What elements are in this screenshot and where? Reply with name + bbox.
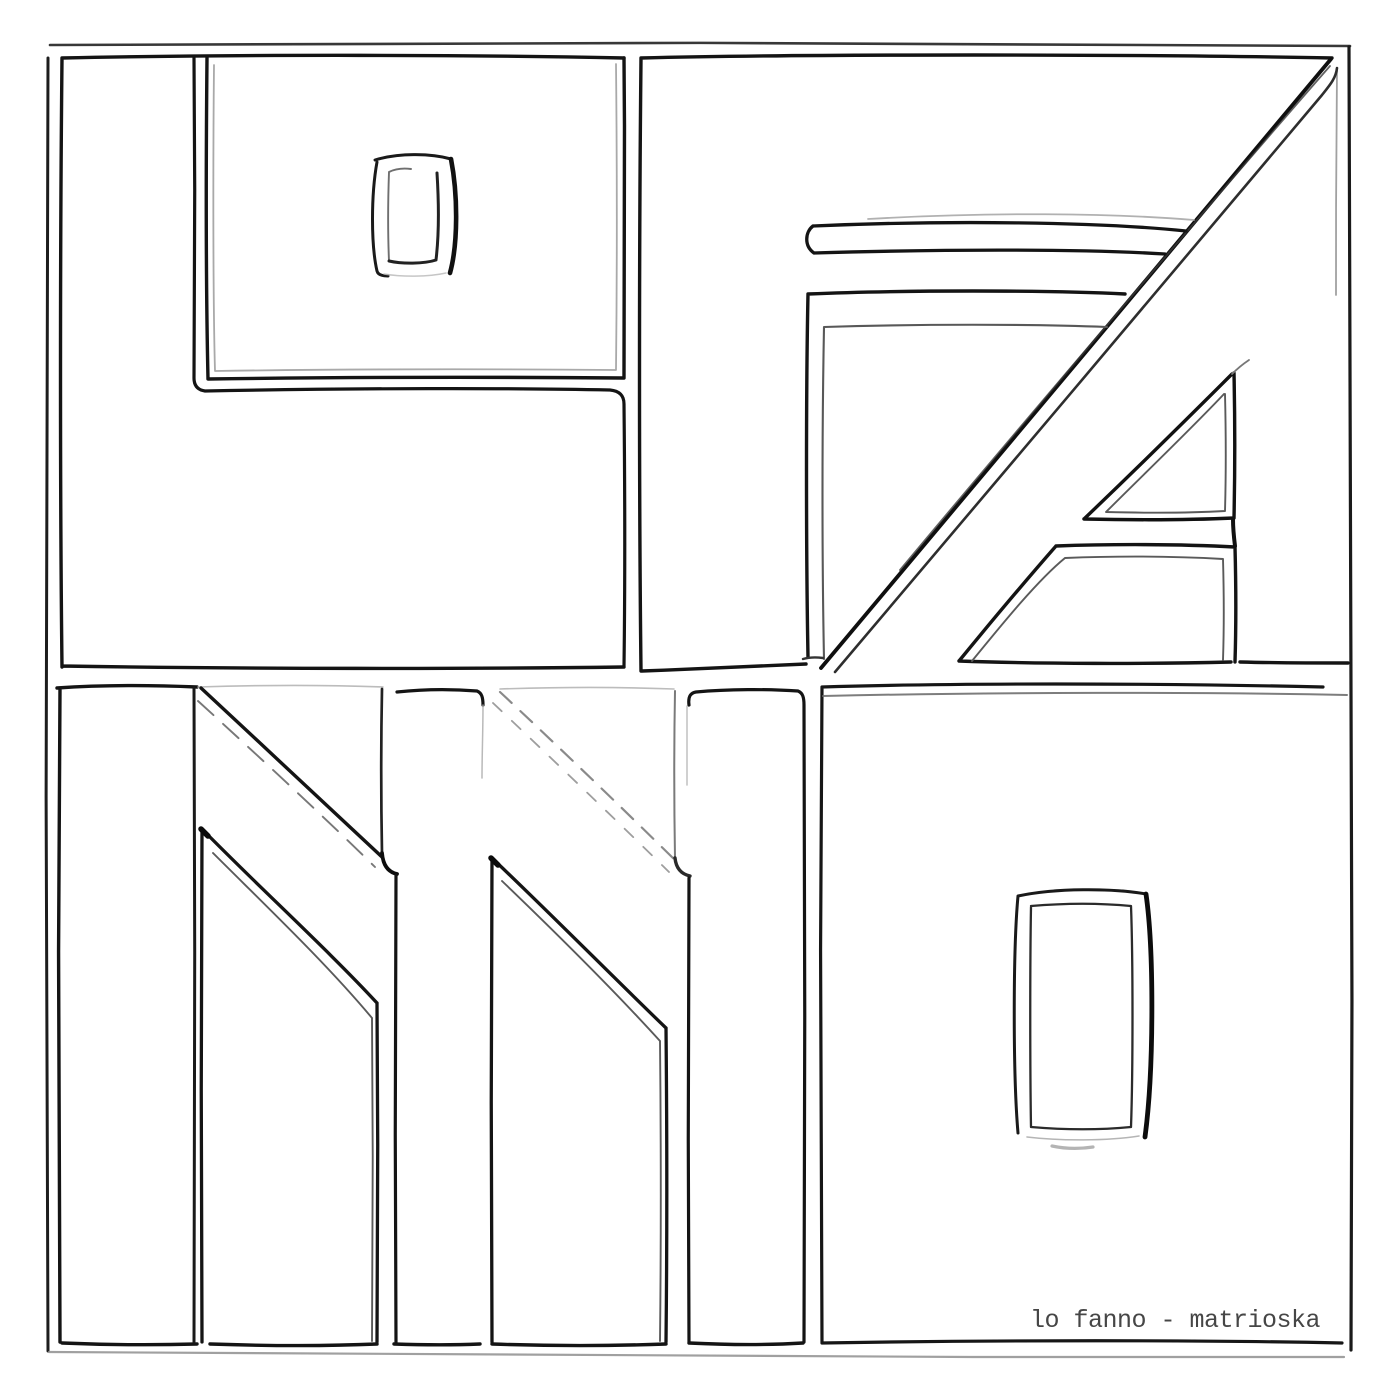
- letter-o-small-inner-left: [388, 169, 411, 261]
- letter-o-small-inner-right-bottom: [389, 173, 438, 263]
- fa-diagonal-second: [835, 68, 1337, 672]
- letter-n2-right-stroke: [688, 690, 805, 1342]
- letter-o-big-outer-bottom-faint: [1027, 1136, 1139, 1140]
- letter-a-lower-quad: [959, 545, 1236, 664]
- letter-l-counter-box-outline: [206, 58, 624, 379]
- letter-o-big-outer-right: [1145, 894, 1152, 1137]
- letter-f-top-bar: [807, 223, 1186, 254]
- letter-a-lower-quad-inner: [972, 557, 1224, 661]
- frame-right-line: [1349, 47, 1352, 1350]
- quadrant-letters-nn: [57, 686, 805, 1346]
- letter-n2-counter-right-edge: [674, 691, 675, 858]
- frame-top-line: [50, 43, 1350, 46]
- letter-n2-lower-counter-inner: [502, 881, 661, 1341]
- letter-a-right-leg-connector: [1233, 519, 1235, 546]
- letter-l-outer-outline: [61, 55, 625, 668]
- letter-o-small-outer-bottom-faint: [384, 273, 446, 276]
- frame-right-inner-echo: [1336, 68, 1337, 295]
- artwork-canvas: lo fanno - matrioska: [0, 0, 1400, 1400]
- fa-border: [640, 55, 1349, 671]
- caption-text: lo fanno - matrioska: [1030, 1306, 1321, 1335]
- frame-left-line: [46, 58, 48, 1351]
- letter-f-top-bar-echo: [868, 214, 1194, 220]
- quadrant-letters-fa: [640, 55, 1349, 672]
- letter-n2-lower-counter-outline: [491, 859, 667, 1342]
- letter-n2-diagonal-dashed-b: [493, 703, 669, 872]
- album-cover-artwork: lo fanno - matrioska: [0, 0, 1400, 1400]
- letter-n1-counter-right-edge: [381, 689, 382, 853]
- quadrant-letter-o: lo fanno - matrioska: [821, 684, 1348, 1343]
- letter-n1-lower-counter-inner: [213, 853, 373, 1341]
- letter-n2-diagonal-dashed-a: [500, 692, 676, 861]
- letter-l-inner-step-edge: [194, 58, 625, 666]
- letter-n1-lower-counter-outline: [201, 830, 378, 1342]
- o-quadrant-border: [821, 684, 1343, 1343]
- letter-o-big-inner-outline: [1030, 904, 1132, 1130]
- frame: [46, 43, 1352, 1357]
- letter-l-counter-box-echo: [213, 64, 616, 371]
- letter-o-big-outer-left-top: [1014, 890, 1146, 1133]
- letter-n1-diagonal: [201, 688, 382, 857]
- letter-a-counter-apex-flick: [1232, 360, 1249, 374]
- letter-a-counter-triangle: [1084, 373, 1235, 520]
- o-quadrant-top-echo: [823, 693, 1347, 696]
- letter-n1-notch-curl: [382, 853, 397, 874]
- fa-diagonal-main: [821, 59, 1331, 668]
- letter-f-stem-bottom-cap: [803, 657, 823, 659]
- quadrant-letters-lo: [61, 55, 625, 668]
- letter-a-counter-triangle-inner: [1106, 394, 1226, 513]
- letter-n2-notch-curl: [675, 858, 690, 876]
- nn-border: [57, 686, 803, 1346]
- letter-n1-right-stroke-taper: [482, 705, 483, 778]
- letter-n1-left-stroke-edge: [194, 688, 195, 1342]
- letter-n1-right-stroke: [395, 690, 483, 1342]
- letter-o-small-outer-right: [450, 159, 456, 273]
- frame-bottom-offset-line: [49, 1352, 1344, 1357]
- letter-f-mid-bar-and-stem: [807, 291, 1126, 657]
- letter-n1-diagonal-echo-dashed: [198, 701, 375, 867]
- letter-o-big-bottom-smudge: [1052, 1146, 1093, 1148]
